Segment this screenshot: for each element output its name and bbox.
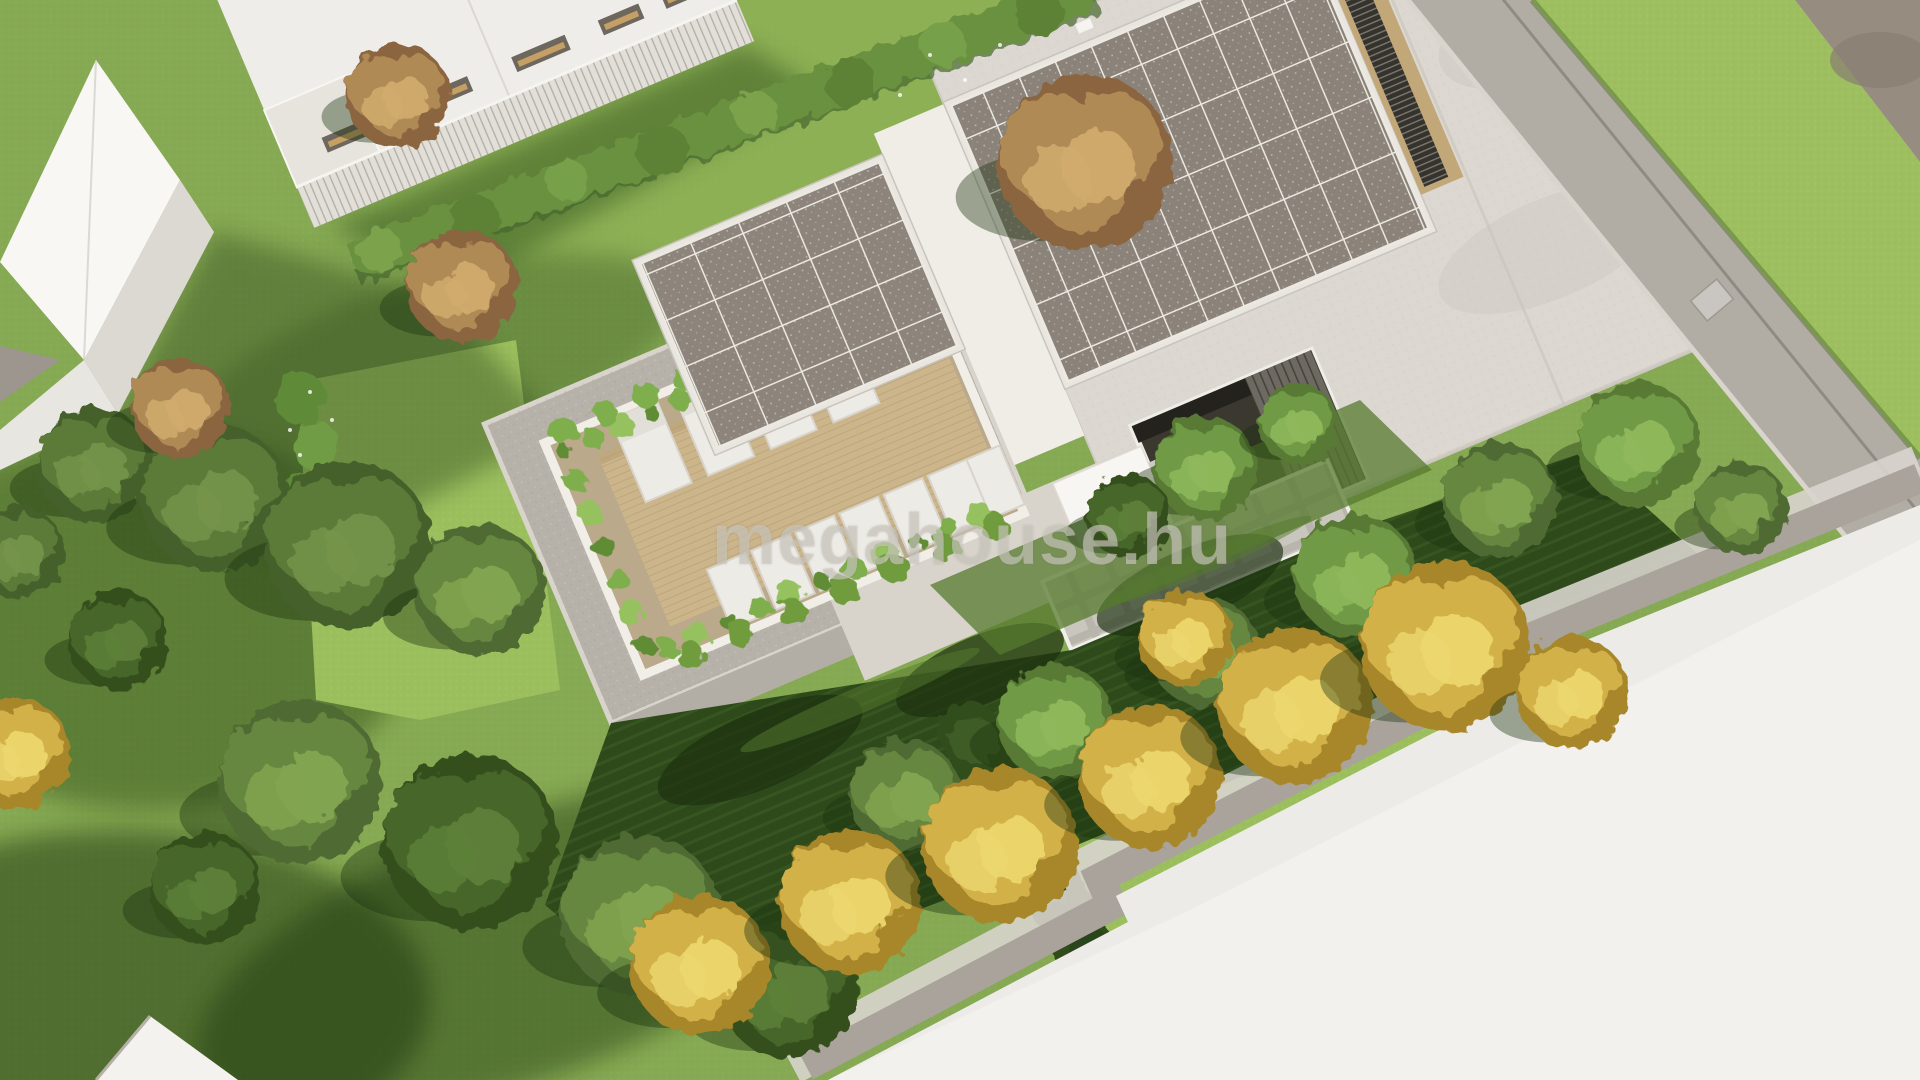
watermark: megahouse.hu bbox=[712, 492, 1232, 588]
aerial-render: megahouse.hu bbox=[0, 0, 1920, 1080]
